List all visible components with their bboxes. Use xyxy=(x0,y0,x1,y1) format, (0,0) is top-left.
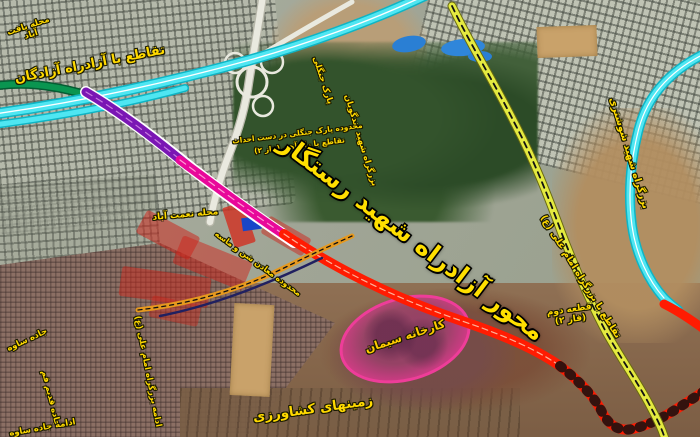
road-minor-orange xyxy=(138,236,352,310)
map-canvas: محله یافت آباد تقاطع با آزادراه آزادگان … xyxy=(0,0,700,437)
road-project-axis xyxy=(86,92,700,430)
